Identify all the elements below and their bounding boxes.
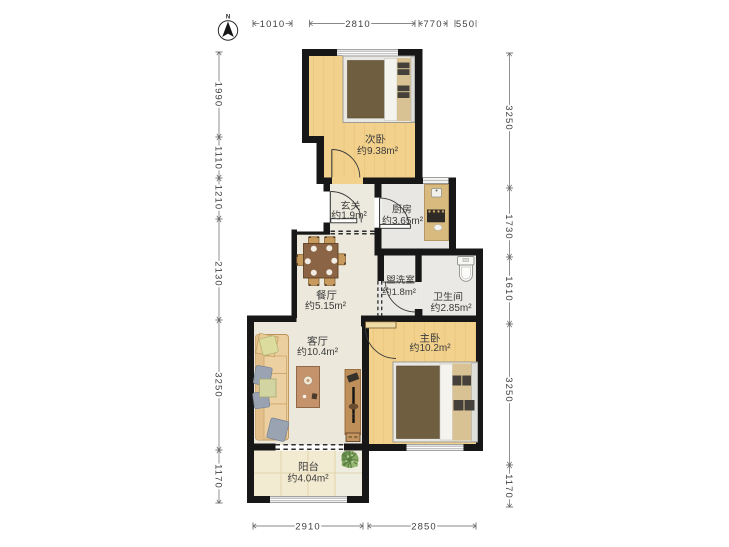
svg-text:1730: 1730 (503, 214, 514, 240)
svg-text:1010: 1010 (260, 19, 286, 30)
svg-text:3250: 3250 (503, 377, 514, 403)
svg-text:10.4m²: 10.4m² (307, 347, 339, 358)
svg-text:1.9m²: 1.9m² (341, 211, 367, 222)
svg-text:2850: 2850 (411, 521, 437, 532)
svg-text:3.65m²: 3.65m² (392, 216, 424, 227)
svg-text:1990: 1990 (213, 82, 224, 108)
svg-text:2910: 2910 (295, 521, 321, 532)
svg-text:N: N (226, 15, 230, 21)
svg-text:1610: 1610 (503, 276, 514, 302)
svg-text:10.2m²: 10.2m² (419, 343, 451, 354)
svg-text:550: 550 (456, 19, 475, 30)
svg-text:2130: 2130 (213, 261, 224, 287)
svg-text:1170: 1170 (503, 474, 514, 499)
svg-text:3250: 3250 (503, 105, 514, 131)
svg-text:4.04m²: 4.04m² (297, 474, 329, 485)
svg-text:1170: 1170 (213, 464, 224, 489)
svg-text:1.8m²: 1.8m² (392, 287, 416, 298)
svg-text:1210: 1210 (213, 185, 224, 211)
svg-text:3250: 3250 (213, 372, 224, 398)
svg-text:770: 770 (423, 19, 442, 30)
svg-text:2.85m²: 2.85m² (440, 303, 472, 314)
svg-text:1110: 1110 (213, 146, 224, 170)
svg-text:5.15m²: 5.15m² (315, 301, 347, 312)
svg-text:9.38m²: 9.38m² (367, 146, 399, 157)
svg-text:2810: 2810 (345, 19, 371, 30)
